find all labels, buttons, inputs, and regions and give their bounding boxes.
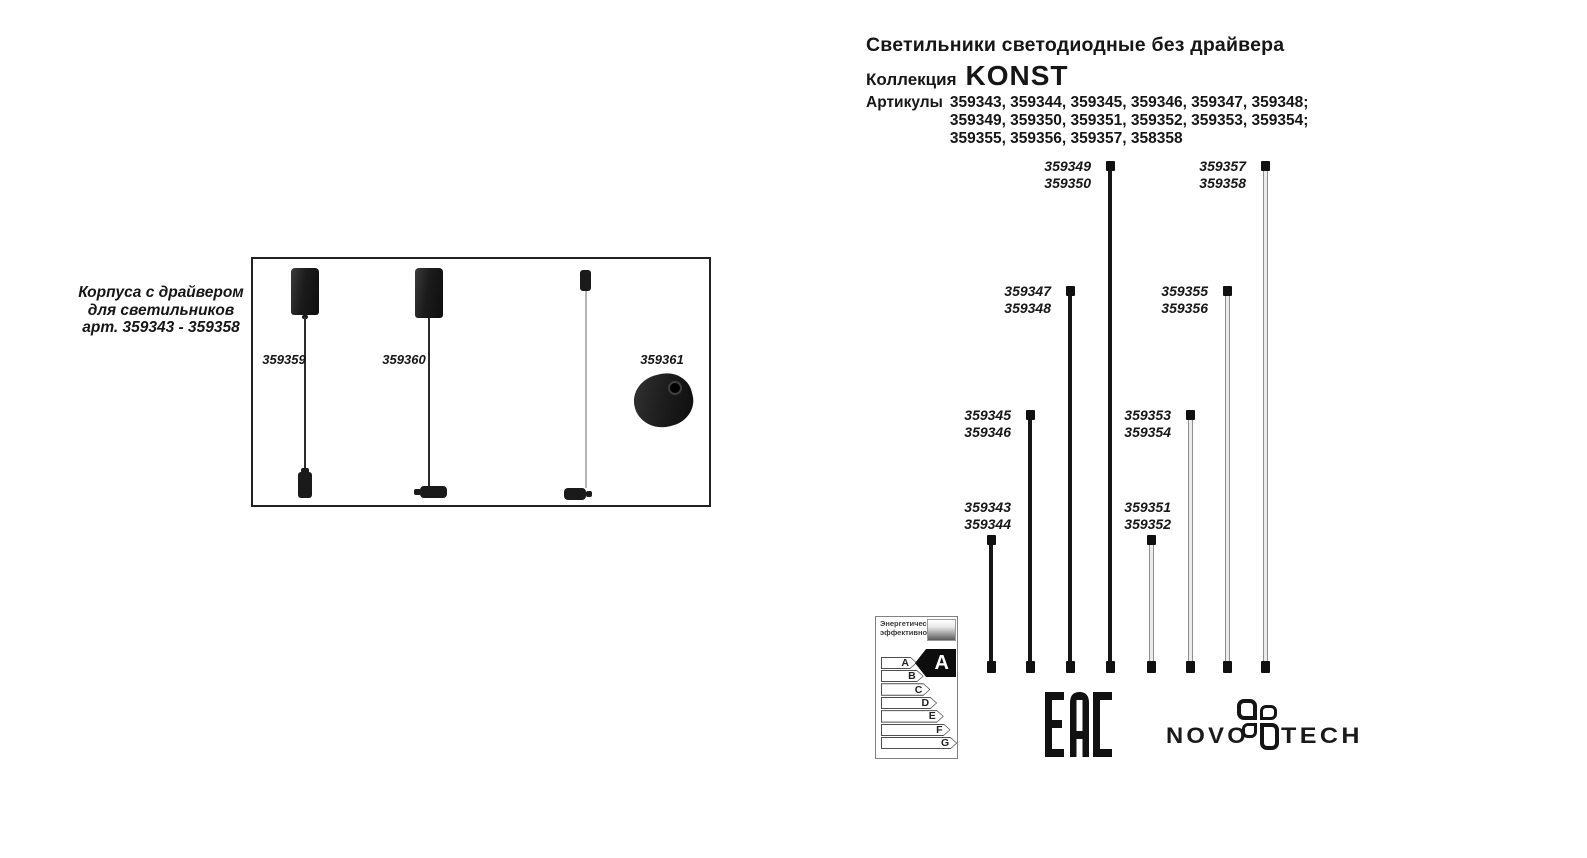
item-label-359359: 359359 (261, 352, 307, 367)
articles-line-2: 359349, 359350, 359351, 359352, 359353, … (950, 112, 1309, 130)
energy-class-B: B (881, 670, 924, 683)
rod-bottom-cap-359349 (1106, 661, 1115, 673)
eac-mark (1045, 692, 1112, 757)
rod-359343 (989, 539, 993, 665)
rod-bottom-cap-359351 (1147, 661, 1156, 673)
rod-top-cap-359343 (987, 535, 996, 545)
cable-grip-359359 (298, 472, 312, 498)
rod-bottom-cap-359347 (1066, 661, 1075, 673)
energy-class-letter-C: C (915, 683, 923, 696)
collection-name: KONST (966, 60, 1069, 92)
energy-class-rows: ABCDEFG (876, 617, 957, 758)
suspension-canopy (580, 270, 591, 291)
rod-bottom-cap-359355 (1223, 661, 1232, 673)
driver-housings-box: 359359 359360 359361 (251, 257, 711, 507)
pendant-cable-359360 (428, 318, 430, 486)
brand-name-right: TECH (1281, 723, 1363, 749)
pendant-cable-359359 (304, 317, 306, 472)
rod-bottom-cap-359353 (1186, 661, 1195, 673)
page-title: Светильники светодиодные без драйвера (866, 34, 1284, 57)
energy-class-letter-G: G (941, 737, 949, 750)
emblem-petal-bottom-right (1260, 723, 1279, 750)
housings-caption-line-2: для светильников (70, 302, 252, 320)
rod-top-cap-359353 (1186, 410, 1195, 420)
energy-class-letter-A: A (901, 657, 909, 670)
energy-class-F: F (881, 724, 951, 737)
emblem-petal-top-right (1260, 705, 1277, 720)
rod-359345 (1028, 414, 1032, 665)
rod-bottom-cap-359345 (1026, 661, 1035, 673)
housings-caption-line-1: Корпуса с драйвером (70, 284, 252, 302)
energy-class-letter-D: D (922, 697, 930, 710)
rod-bottom-cap-359343 (987, 661, 996, 673)
energy-class-C: C (881, 683, 930, 696)
rod-top-cap-359355 (1223, 286, 1232, 296)
emblem-petal-top-left (1237, 699, 1257, 720)
housings-caption-line-3: арт. 359343 - 359358 (70, 319, 252, 337)
item-label-359361: 359361 (639, 352, 685, 367)
novotech-emblem-icon (1237, 697, 1280, 753)
rod-top-cap-359347 (1066, 286, 1075, 296)
energy-rating-letter: A (935, 652, 949, 675)
rod-359353 (1188, 414, 1193, 665)
rod-top-cap-359357 (1261, 161, 1270, 171)
drum-housing-359361 (628, 368, 698, 434)
rod-label-359347-359348: 359347359348 (1004, 283, 1051, 316)
rod-359349 (1108, 165, 1112, 665)
rod-359355 (1225, 290, 1230, 665)
rod-label-359345-359346: 359345359346 (964, 407, 1011, 440)
rod-label-359357-359358: 359357359358 (1199, 158, 1246, 191)
energy-class-G: G (881, 737, 957, 750)
energy-class-letter-B: B (908, 670, 916, 683)
rod-label-359351-359352: 359351359352 (1124, 499, 1171, 532)
rod-top-cap-359349 (1106, 161, 1115, 171)
rod-359351 (1149, 539, 1154, 665)
articles-label: Артикулы (866, 94, 943, 148)
cable-grip-359360 (420, 486, 447, 498)
rod-top-cap-359345 (1026, 410, 1035, 420)
suspension-nub (586, 491, 592, 497)
rod-label-359355-359356: 359355359356 (1161, 283, 1208, 316)
energy-class-letter-E: E (929, 710, 936, 723)
rod-bottom-cap-359357 (1261, 661, 1270, 673)
item-label-359360: 359360 (381, 352, 427, 367)
rod-label-359353-359354: 359353359354 (1124, 407, 1171, 440)
rod-label-359349-359350: 359349359350 (1044, 158, 1091, 191)
drum-hole-359361 (668, 381, 682, 395)
energy-efficiency-label: Энергетическая эффективность ABCDEFG A (875, 616, 958, 759)
energy-class-D: D (881, 697, 937, 710)
collection-line: Коллекция KONST (866, 60, 1069, 92)
emblem-petal-bottom-left (1242, 723, 1257, 738)
energy-class-letter-F: F (936, 724, 942, 737)
energy-class-E: E (881, 710, 944, 723)
collection-label: Коллекция (866, 70, 957, 90)
pendant-canopy-359360 (415, 268, 443, 318)
energy-class-A: A (881, 657, 917, 670)
articles-block: Артикулы 359343, 359344, 359345, 359346,… (866, 94, 1308, 148)
rod-359357 (1263, 165, 1268, 665)
rod-359347 (1068, 290, 1072, 665)
suspension-grip (564, 488, 586, 500)
pendant-canopy-359359 (291, 268, 319, 315)
rod-label-359343-359344: 359343359344 (964, 499, 1011, 532)
articles-line-3: 359355, 359356, 359357, 358358 (950, 130, 1309, 148)
suspension-cable (585, 291, 587, 488)
rod-top-cap-359351 (1147, 535, 1156, 545)
housings-caption: Корпуса с драйвером для светильников арт… (70, 284, 252, 337)
articles-line-1: 359343, 359344, 359345, 359346, 359347, … (950, 94, 1309, 112)
